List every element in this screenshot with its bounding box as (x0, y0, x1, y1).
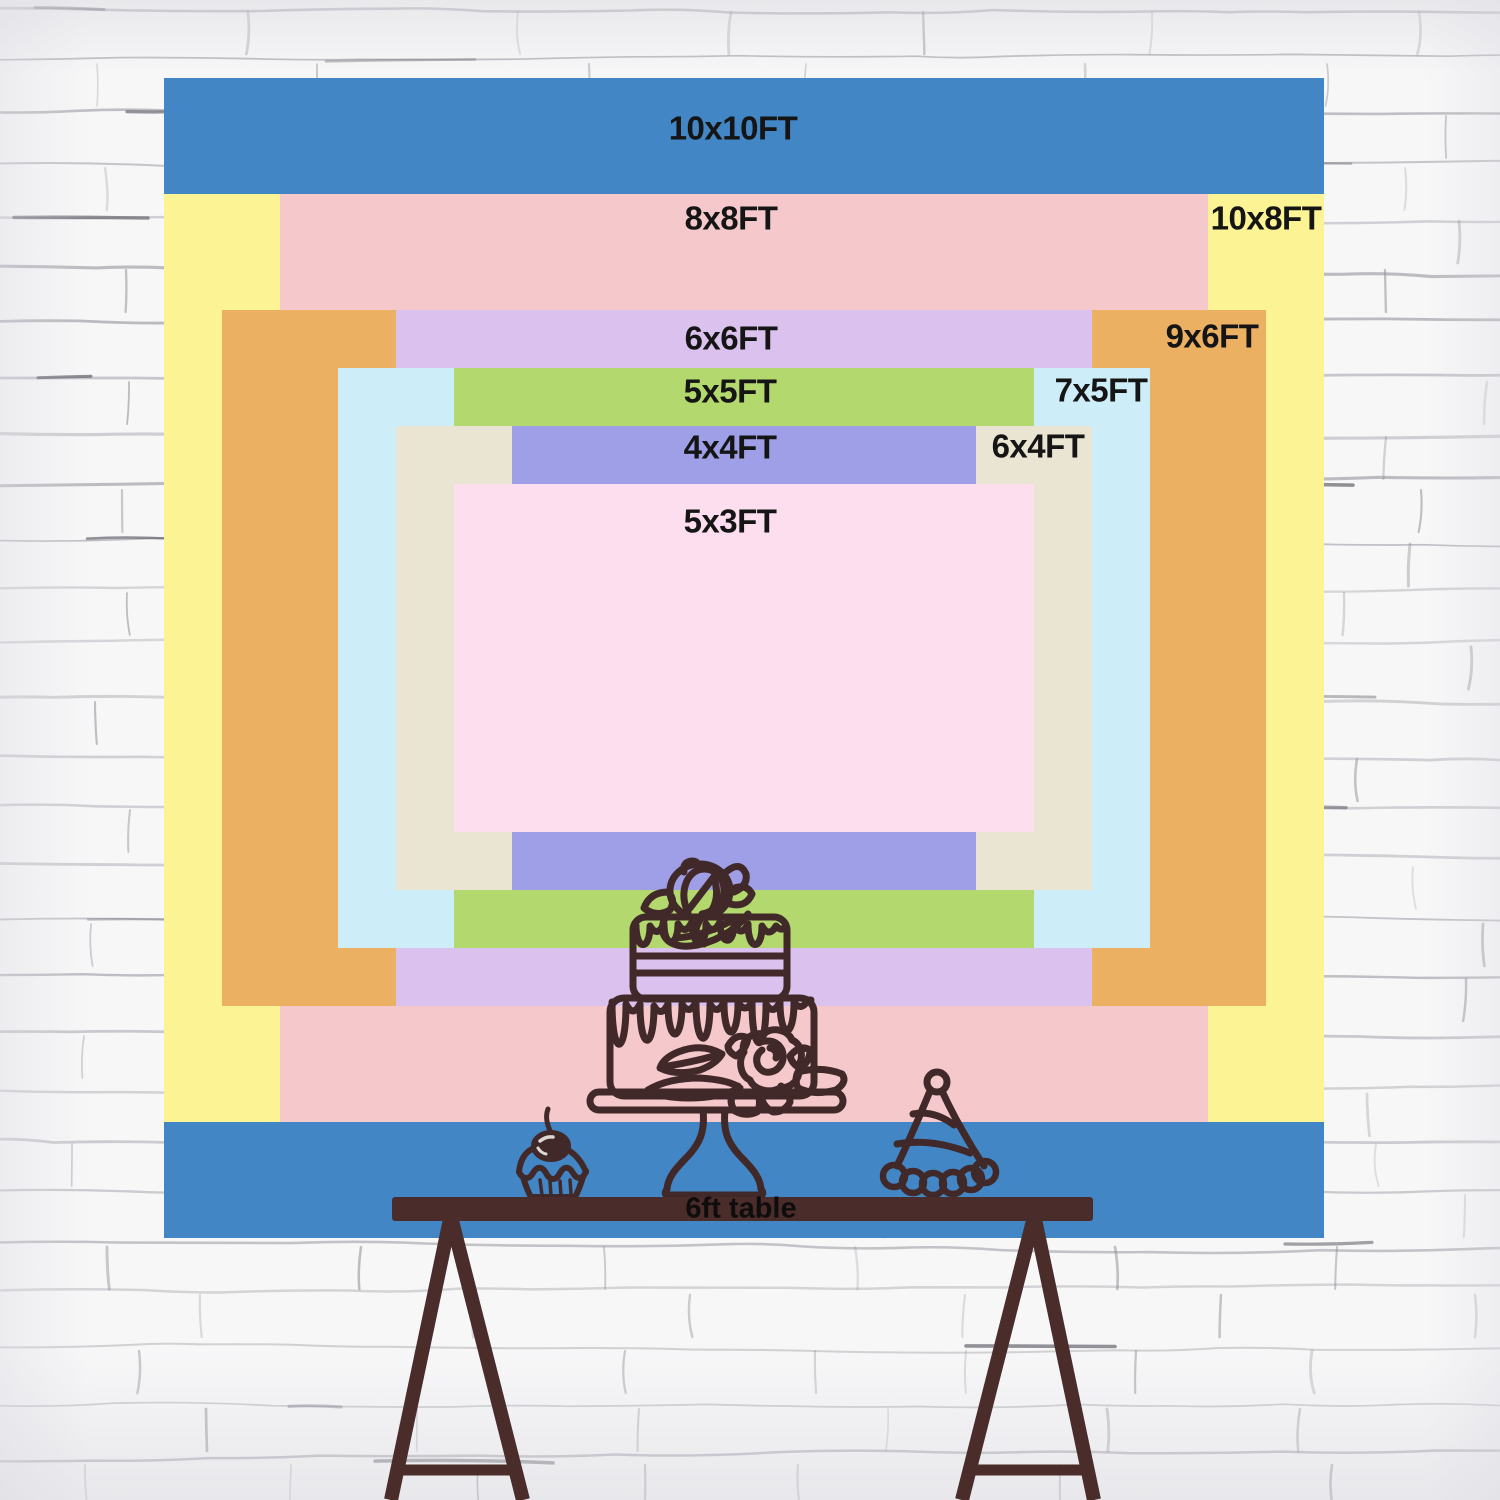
cupcake-illustration (519, 1109, 586, 1197)
line-artwork (0, 0, 1500, 1500)
trestle-right (962, 1205, 1094, 1500)
hat-cone-left (897, 1091, 930, 1166)
cake-illustration (590, 861, 844, 1195)
trestle-left (391, 1205, 523, 1500)
hat-cone-right (942, 1091, 984, 1166)
cake-bottom-drip (612, 1000, 811, 1044)
cherry-stem (547, 1109, 551, 1133)
party-hat-illustration (883, 1072, 996, 1195)
cake-stand (590, 1092, 843, 1195)
trestle-table (391, 1197, 1094, 1500)
table-label: 6ft table (685, 1193, 796, 1226)
cupcake-drip (519, 1168, 586, 1179)
hat-pom-trim (883, 1161, 996, 1195)
backdrop-size-chart: 10x10FT10x8FT8x8FT9x6FT6x6FT7x5FT5x5FT6x… (0, 0, 1500, 1500)
